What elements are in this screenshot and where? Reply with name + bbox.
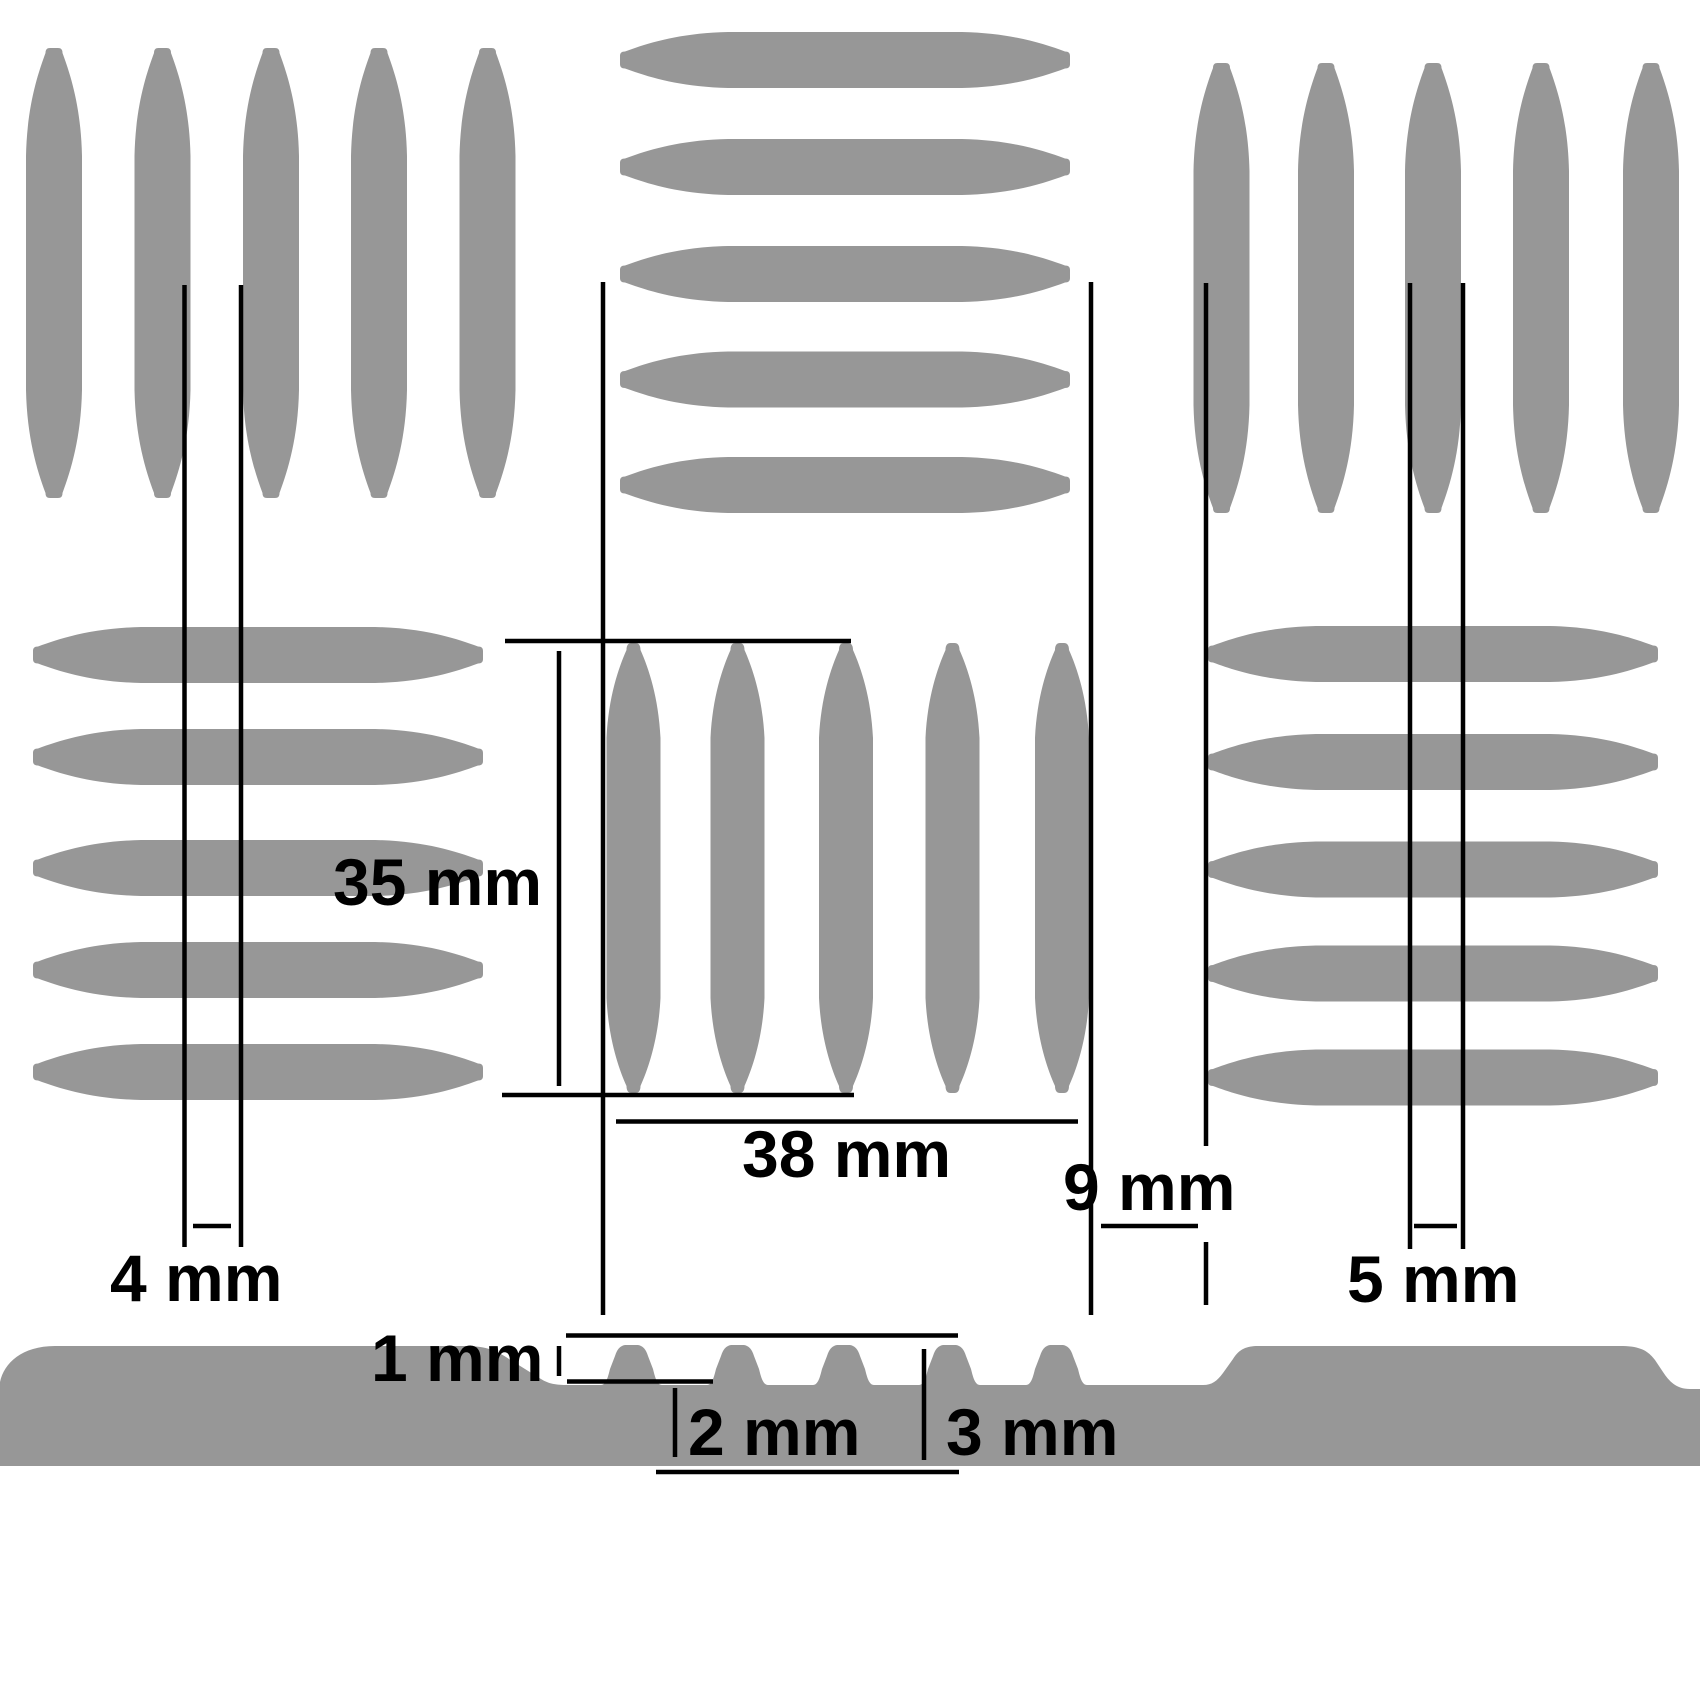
svg-text:9 mm: 9 mm xyxy=(1063,1150,1235,1224)
svg-text:1 mm: 1 mm xyxy=(371,1321,543,1395)
svg-text:38 mm: 38 mm xyxy=(742,1117,951,1191)
svg-text:4 mm: 4 mm xyxy=(110,1241,282,1315)
svg-text:35 mm: 35 mm xyxy=(333,845,542,919)
svg-text:5 mm: 5 mm xyxy=(1347,1242,1519,1316)
svg-text:2 mm: 2 mm xyxy=(688,1395,860,1469)
svg-text:3 mm: 3 mm xyxy=(946,1395,1118,1469)
